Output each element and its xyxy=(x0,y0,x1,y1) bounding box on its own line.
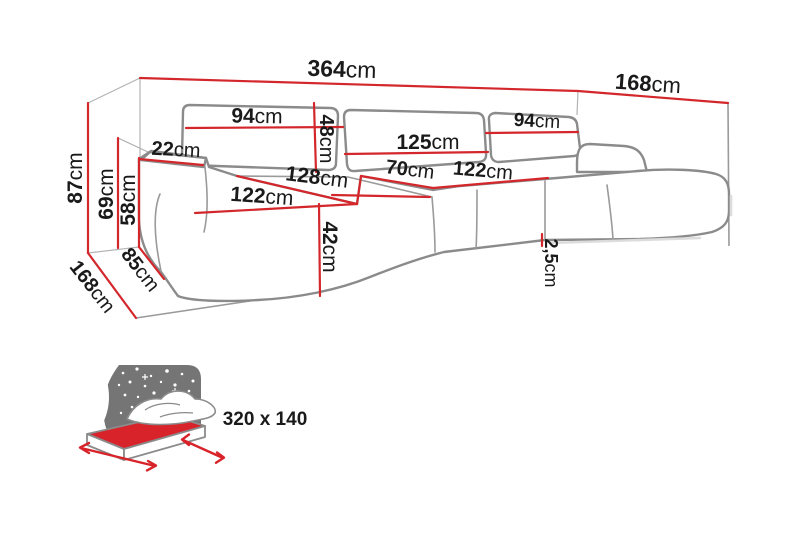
dim-label-total-height: 87cm xyxy=(64,152,87,203)
moon-crescent xyxy=(57,357,109,437)
dim-label-total-width: 364cm xyxy=(307,55,377,83)
dim-label-cushion-right: 94cm xyxy=(513,109,561,132)
dim-label-armrest-height: 58cm xyxy=(117,174,140,225)
diagram-canvas: 364cm 168cm 87cm 69cm 58cm 22cm 94cm 48c… xyxy=(0,0,800,533)
dim-label-seat-depth: 70cm xyxy=(384,156,435,184)
sleep-size-label: 320 x 140 xyxy=(223,409,308,430)
dim-label-cushion-middle: 125cm xyxy=(396,131,459,154)
dim-label-back-height: 69cm xyxy=(95,168,118,219)
dim-label-cushion-height: 48cm xyxy=(315,115,337,164)
dim-label-right-seat: 122cm xyxy=(452,157,514,184)
dim-line-cushion-right xyxy=(486,132,578,133)
right-backrest-wing xyxy=(577,144,647,172)
dim-label-seat-height: 42cm xyxy=(319,221,342,272)
dim-label-chaise-length: 122cm xyxy=(230,182,294,209)
dim-label-armrest-width: 22cm xyxy=(151,138,201,163)
dim-label-floor-clearance: 2,5cm xyxy=(541,238,561,287)
dim-label-cushion-left: 94cm xyxy=(231,104,283,128)
dim-label-depth-left: 168cm xyxy=(65,257,119,318)
sofa-dimension-diagram: 364cm 168cm 87cm 69cm 58cm 22cm 94cm 48c… xyxy=(0,0,800,533)
dim-label-depth-right: 168cm xyxy=(614,68,682,98)
sleep-function-icon xyxy=(57,357,224,470)
